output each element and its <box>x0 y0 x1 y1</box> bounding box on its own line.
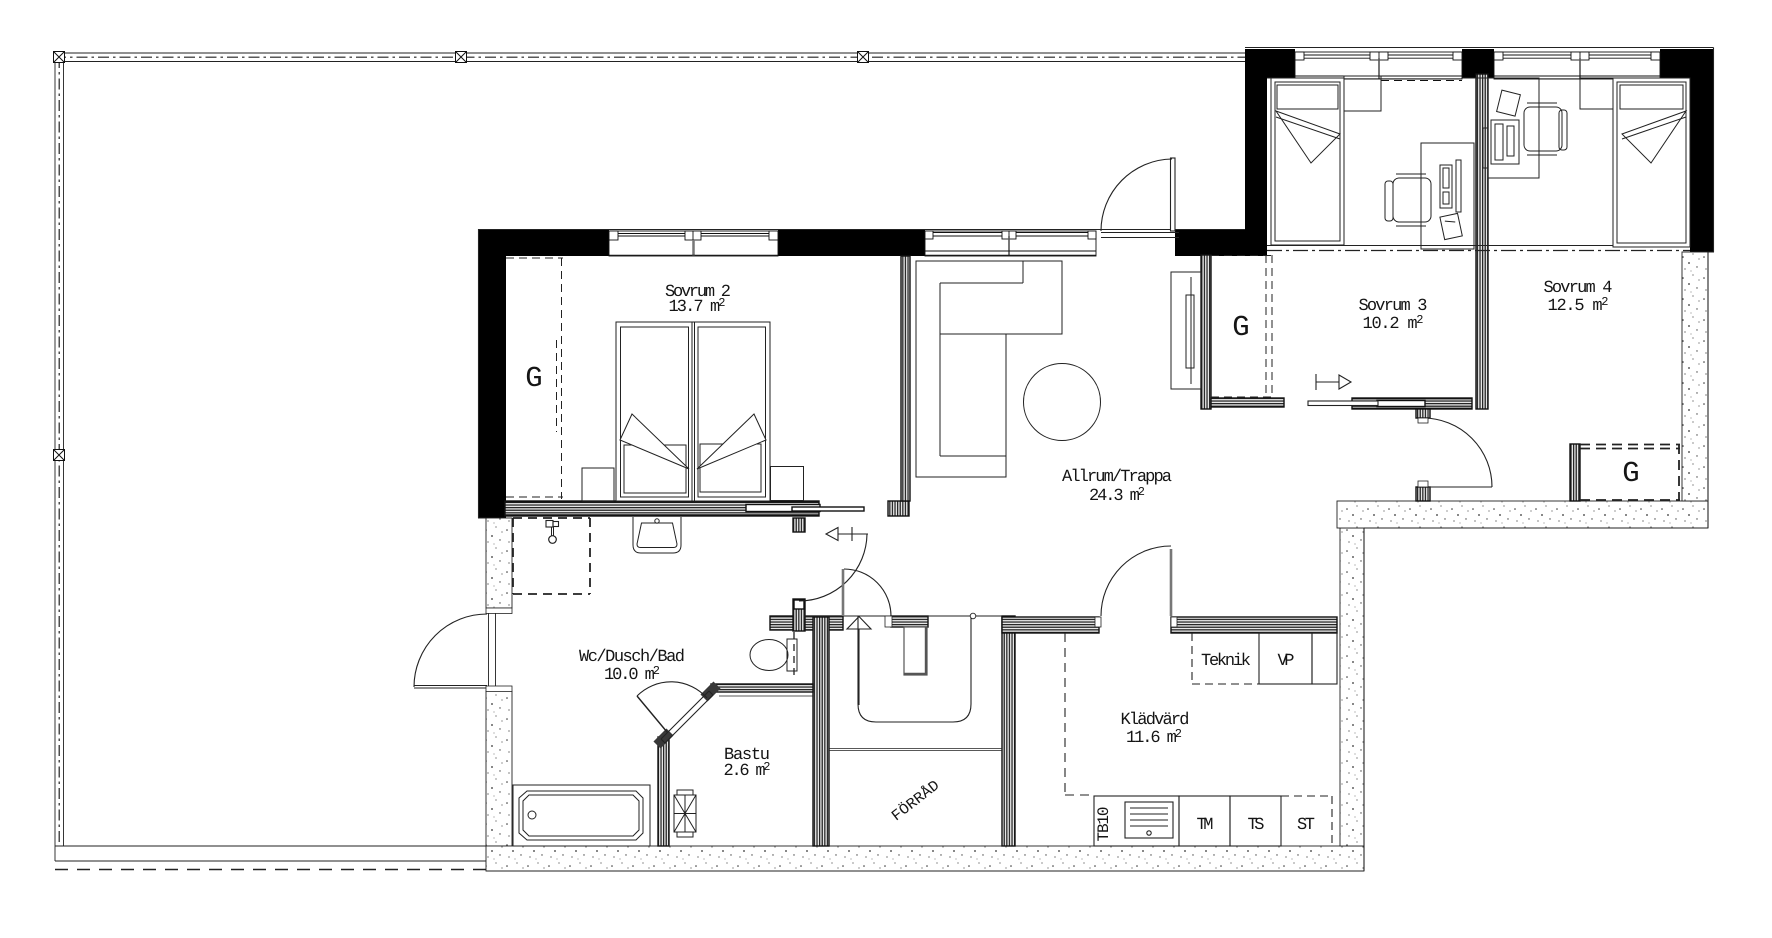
svg-text:10.0 m2: 10.0 m2 <box>604 664 660 685</box>
svg-text:12.5 m2: 12.5 m2 <box>1548 295 1609 316</box>
svg-text:TS: TS <box>1248 816 1265 835</box>
svg-text:11.6 m2: 11.6 m2 <box>1126 727 1182 748</box>
svg-text:G: G <box>1232 311 1249 344</box>
svg-text:G: G <box>525 362 542 395</box>
svg-text:Wc/Dusch/Bad: Wc/Dusch/Bad <box>579 648 685 667</box>
svg-text:G: G <box>1622 457 1639 490</box>
svg-text:TM: TM <box>1197 816 1214 835</box>
svg-text:Teknik: Teknik <box>1201 652 1251 671</box>
svg-text:24.3 m2: 24.3 m2 <box>1089 485 1145 506</box>
svg-text:ST: ST <box>1297 816 1315 835</box>
svg-text:VP: VP <box>1278 652 1295 671</box>
svg-text:Allrum/Trappa: Allrum/Trappa <box>1062 468 1172 487</box>
svg-text:10.2 m2: 10.2 m2 <box>1363 313 1424 334</box>
svg-text:13.7 m2: 13.7 m2 <box>669 296 726 317</box>
svg-text:2.6 m2: 2.6 m2 <box>724 760 771 781</box>
svg-text:TB10: TB10 <box>1095 807 1113 842</box>
